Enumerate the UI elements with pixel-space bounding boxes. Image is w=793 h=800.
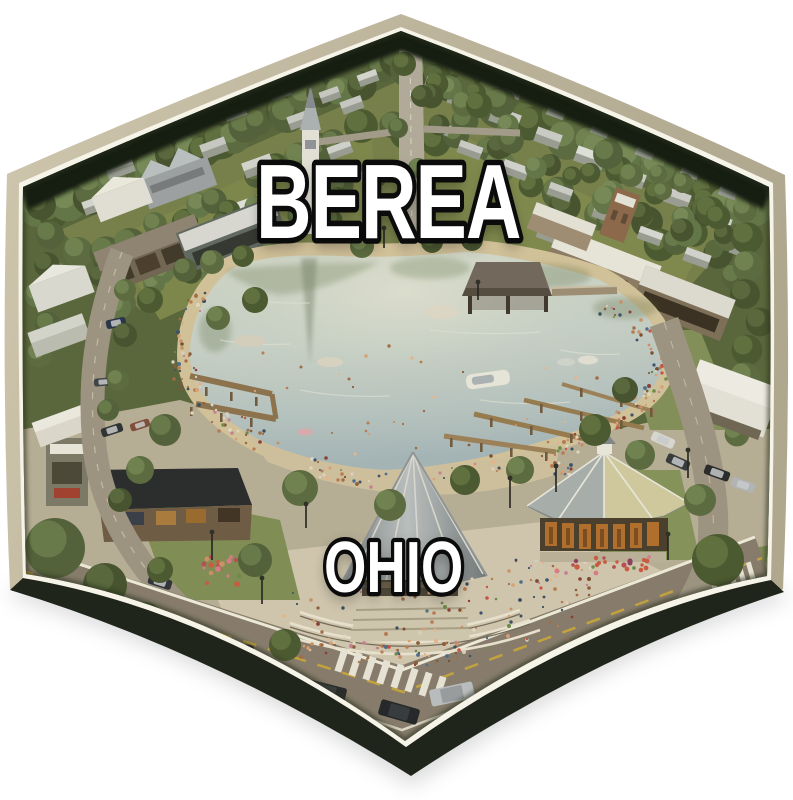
svg-text:BEREA: BEREA [256,142,521,261]
svg-text:OHIO: OHIO [324,526,463,607]
